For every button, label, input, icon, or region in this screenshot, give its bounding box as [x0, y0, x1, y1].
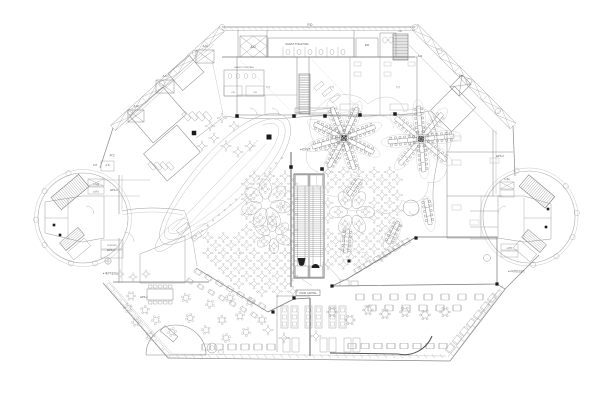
svg-text:A.D: A.D [106, 164, 110, 167]
svg-text:A.D: A.D [250, 45, 256, 49]
svg-text:A.D: A.D [418, 54, 423, 58]
svg-text:EPS-3: EPS-3 [496, 155, 504, 158]
svg-text:P.D: P.D [308, 23, 314, 27]
svg-text:EPS-1: EPS-1 [110, 189, 118, 192]
svg-text:C.H: C.H [93, 164, 97, 167]
svg-text:DN: DN [398, 31, 402, 33]
svg-text:GUEST TOILETING: GUEST TOILETING [285, 42, 308, 46]
svg-text:A.D: A.D [133, 104, 139, 108]
svg-text:EPS-2: EPS-2 [107, 249, 115, 252]
svg-text:FOOD CAPITAL: FOOD CAPITAL [299, 292, 317, 295]
svg-text:CH: CH [231, 92, 235, 94]
svg-text:A.D: A.D [459, 74, 463, 78]
svg-text:A.D: A.D [202, 44, 208, 48]
svg-text:CH: CH [253, 92, 257, 94]
svg-text:A.D: A.D [162, 74, 168, 78]
svg-text:◄성보식품: ◄성보식품 [299, 147, 311, 151]
